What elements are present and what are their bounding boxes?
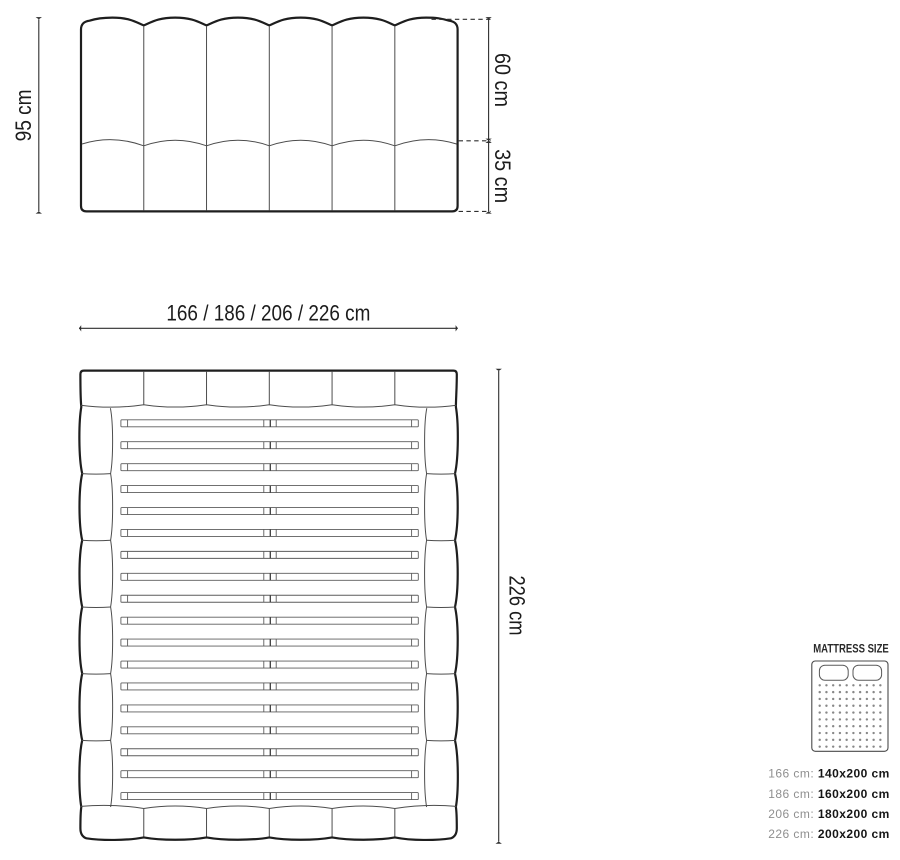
svg-text:60 cm: 60 cm [490, 53, 515, 107]
svg-text:166 cm: 140x200 cm: 166 cm: 140x200 cm [768, 767, 890, 781]
svg-text:35 cm: 35 cm [490, 149, 515, 203]
svg-text:MATTRESS SIZE: MATTRESS SIZE [813, 641, 889, 655]
svg-text:95 cm: 95 cm [11, 89, 36, 141]
svg-text:226 cm: 226 cm [504, 576, 529, 636]
svg-text:226 cm: 200x200 cm: 226 cm: 200x200 cm [768, 827, 890, 841]
svg-text:186 cm: 160x200 cm: 186 cm: 160x200 cm [768, 787, 890, 801]
svg-text:166 / 186 / 206 / 226 cm: 166 / 186 / 206 / 226 cm [166, 300, 370, 325]
svg-text:206 cm: 180x200 cm: 206 cm: 180x200 cm [768, 807, 890, 821]
